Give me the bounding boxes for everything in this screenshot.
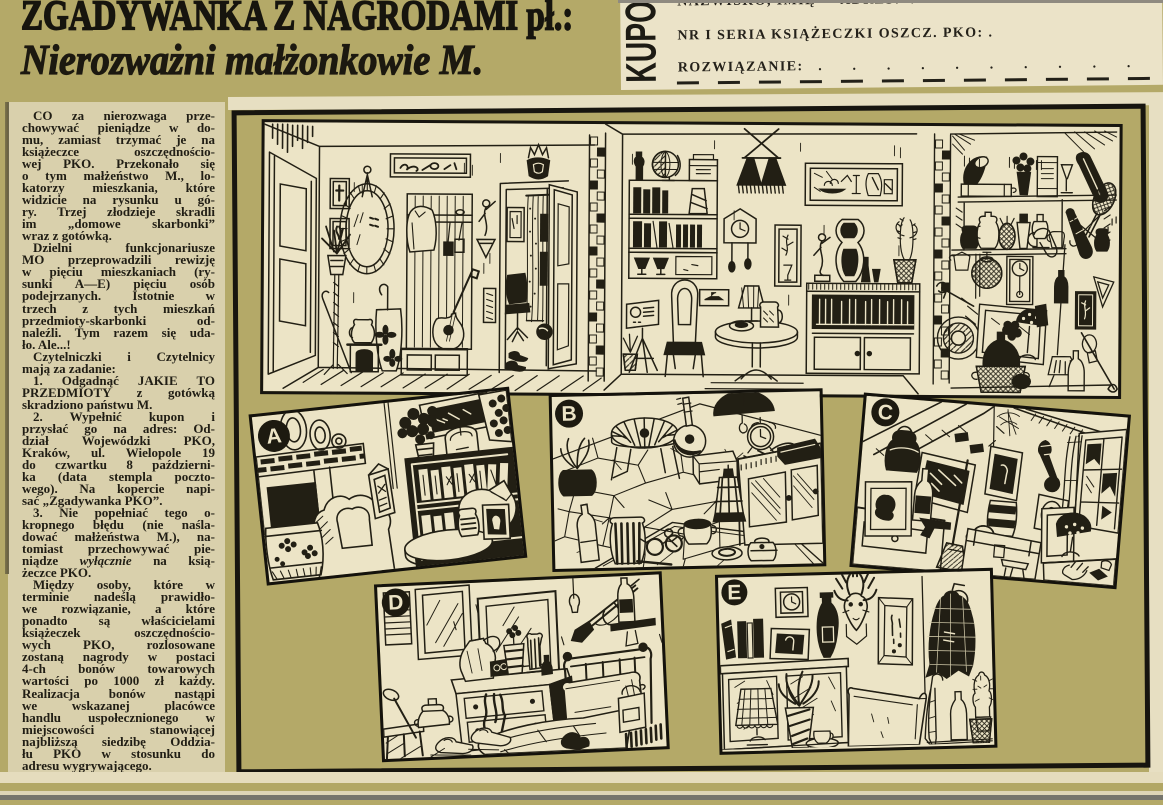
svg-text:D: D — [388, 591, 404, 615]
svg-text:B: B — [561, 402, 577, 425]
svg-text:C: C — [877, 401, 894, 425]
svg-text:E: E — [727, 581, 742, 604]
svg-text:A: A — [265, 424, 283, 448]
